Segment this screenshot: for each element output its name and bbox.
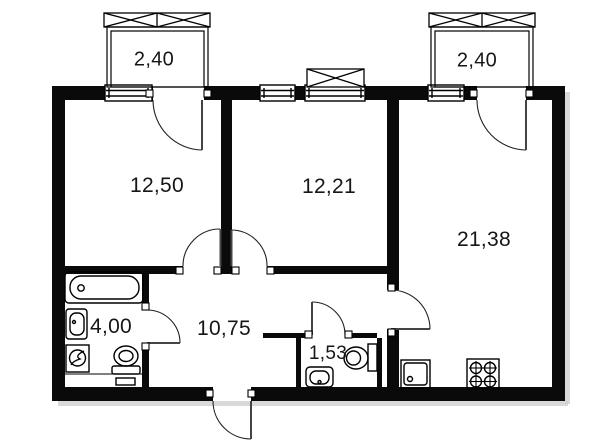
door-bedroom-left — [183, 229, 221, 266]
kitchen-sink-icon — [401, 360, 430, 388]
wall-segment — [267, 266, 387, 274]
facade-basket-icon — [307, 69, 364, 87]
floor-plan: 2,40 2,40 12,50 12,21 21,38 4,00 10,75 1… — [0, 0, 610, 446]
floor-plan-drawing — [0, 0, 610, 446]
washbasin-icon — [66, 309, 87, 339]
wall-segment — [221, 100, 232, 274]
room-label-balcony-left: 2,40 — [134, 49, 174, 72]
door-bedroom-middle — [231, 230, 267, 266]
wall-segment — [296, 338, 301, 387]
room-label-wc: 1,53 — [309, 343, 347, 365]
wall-segment — [52, 387, 213, 401]
door-entrance — [213, 401, 251, 439]
room-label-bedroom-left: 12,50 — [130, 174, 184, 198]
bathroom-shelf — [65, 374, 142, 385]
room-label-balcony-right: 2,40 — [457, 50, 497, 73]
door-bathroom — [147, 310, 180, 343]
balcony-railing-icon — [104, 13, 210, 27]
wall-segment — [52, 86, 65, 401]
wall-segment — [65, 266, 183, 274]
wall-segment — [387, 100, 399, 290]
bathtub-icon — [65, 272, 143, 303]
room-label-hallway: 10,75 — [197, 317, 251, 341]
washing-machine-icon — [66, 345, 89, 372]
wall-segment — [387, 329, 399, 387]
room-label-living-kitchen: 21,38 — [457, 228, 511, 252]
balcony-railing-icon — [429, 13, 535, 27]
wc-toilet-icon — [344, 344, 377, 371]
toilet-icon — [112, 346, 140, 374]
wall-segment — [377, 338, 382, 387]
wall-segment — [552, 86, 565, 401]
wc-washbasin-icon — [306, 367, 333, 387]
room-label-bedroom-middle: 12,21 — [302, 175, 356, 199]
wall-segment — [251, 387, 565, 401]
stove-icon — [467, 359, 499, 389]
door-wc — [312, 302, 345, 335]
door-living-kitchen — [391, 290, 430, 329]
window-icon — [260, 85, 295, 101]
room-label-bathroom: 4,00 — [90, 315, 132, 339]
door-balcony-left — [153, 100, 202, 150]
door-balcony-right — [477, 100, 526, 150]
